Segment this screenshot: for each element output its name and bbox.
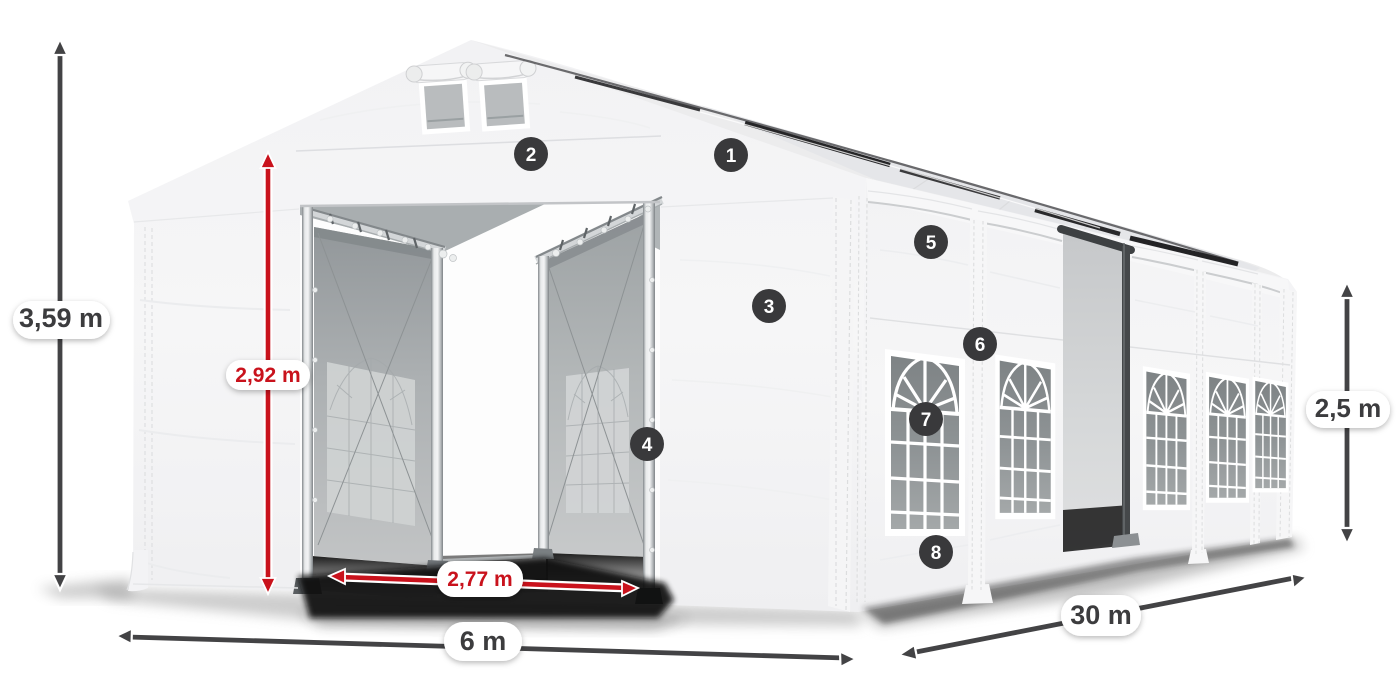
svg-text:1: 1 — [726, 146, 737, 167]
svg-text:4: 4 — [642, 435, 653, 456]
svg-text:3: 3 — [764, 297, 775, 318]
svg-text:2,92 m: 2,92 m — [235, 364, 300, 387]
svg-text:7: 7 — [921, 410, 932, 431]
svg-text:30 m: 30 m — [1070, 600, 1132, 630]
svg-text:6 m: 6 m — [460, 626, 507, 656]
svg-text:2,77 m: 2,77 m — [447, 568, 512, 591]
svg-text:6: 6 — [975, 335, 986, 356]
svg-text:2: 2 — [526, 145, 537, 166]
svg-text:8: 8 — [931, 543, 942, 564]
svg-text:2,5 m: 2,5 m — [1315, 393, 1382, 423]
svg-text:3,59 m: 3,59 m — [19, 303, 103, 333]
svg-text:5: 5 — [926, 233, 937, 254]
